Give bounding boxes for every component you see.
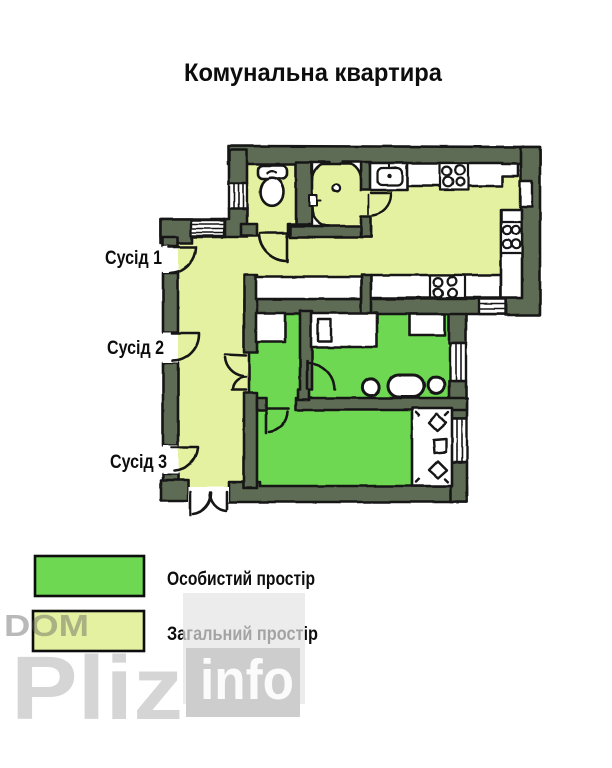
svg-text:info: info — [200, 648, 294, 712]
svg-text:Сусід 1: Сусід 1 — [105, 248, 162, 269]
svg-text:Pliz: Pliz — [11, 639, 183, 739]
svg-text:Сусід 2: Сусід 2 — [107, 338, 164, 359]
svg-text:Особистий простір: Особистий простір — [167, 569, 315, 590]
svg-text:Комунальна квартира: Комунальна квартира — [184, 59, 443, 87]
svg-text:Сусід 3: Сусід 3 — [110, 452, 167, 473]
svg-text:DOM: DOM — [4, 608, 89, 643]
